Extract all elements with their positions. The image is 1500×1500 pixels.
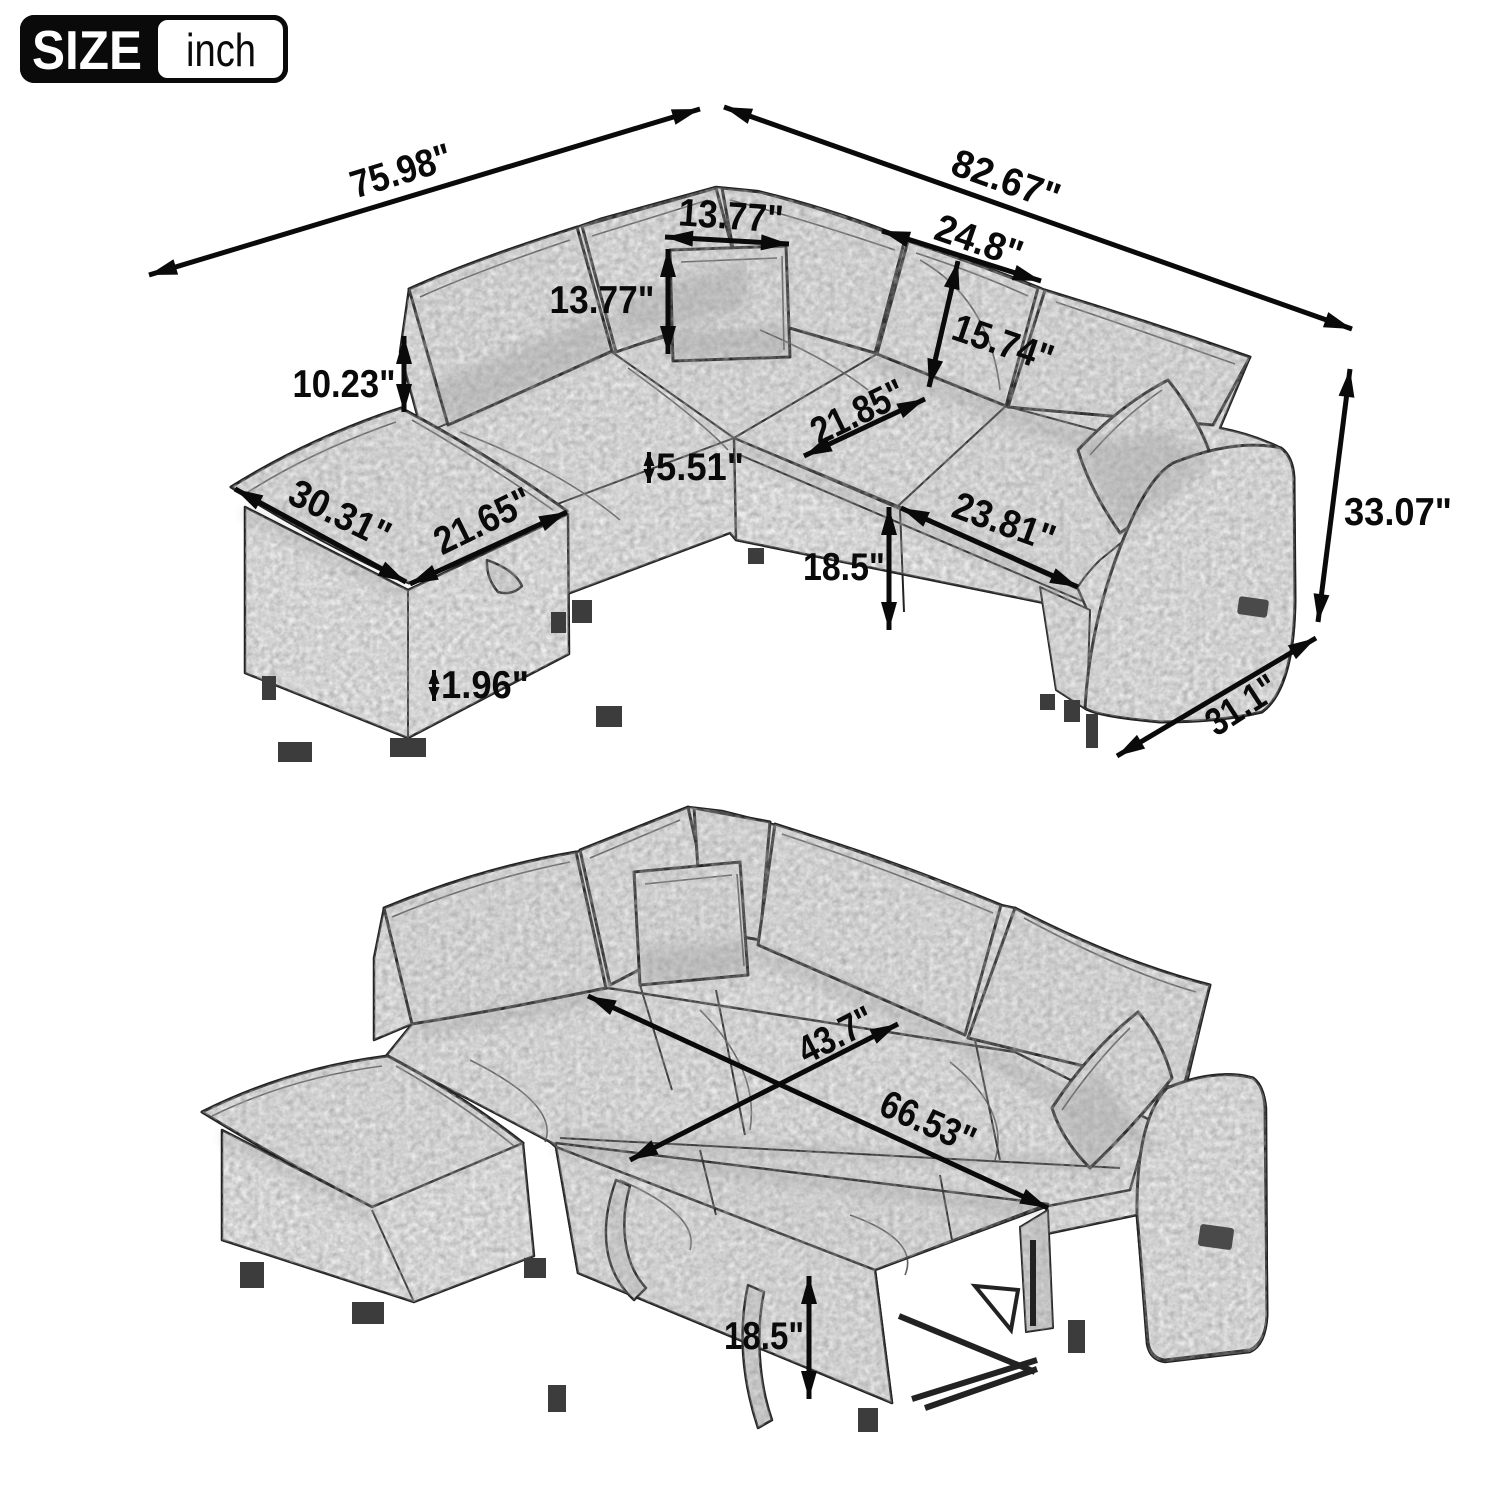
svg-text:inch: inch [186, 24, 256, 76]
svg-text:13.77": 13.77" [550, 279, 655, 322]
svg-text:1.96": 1.96" [441, 664, 529, 707]
svg-text:13.77": 13.77" [677, 191, 785, 241]
svg-text:SIZE: SIZE [32, 19, 142, 81]
svg-text:5.51": 5.51" [656, 446, 744, 489]
svg-text:10.23": 10.23" [293, 363, 396, 406]
svg-text:33.07": 33.07" [1344, 491, 1452, 534]
svg-text:18.5": 18.5" [803, 546, 885, 589]
svg-text:18.5": 18.5" [724, 1315, 804, 1358]
